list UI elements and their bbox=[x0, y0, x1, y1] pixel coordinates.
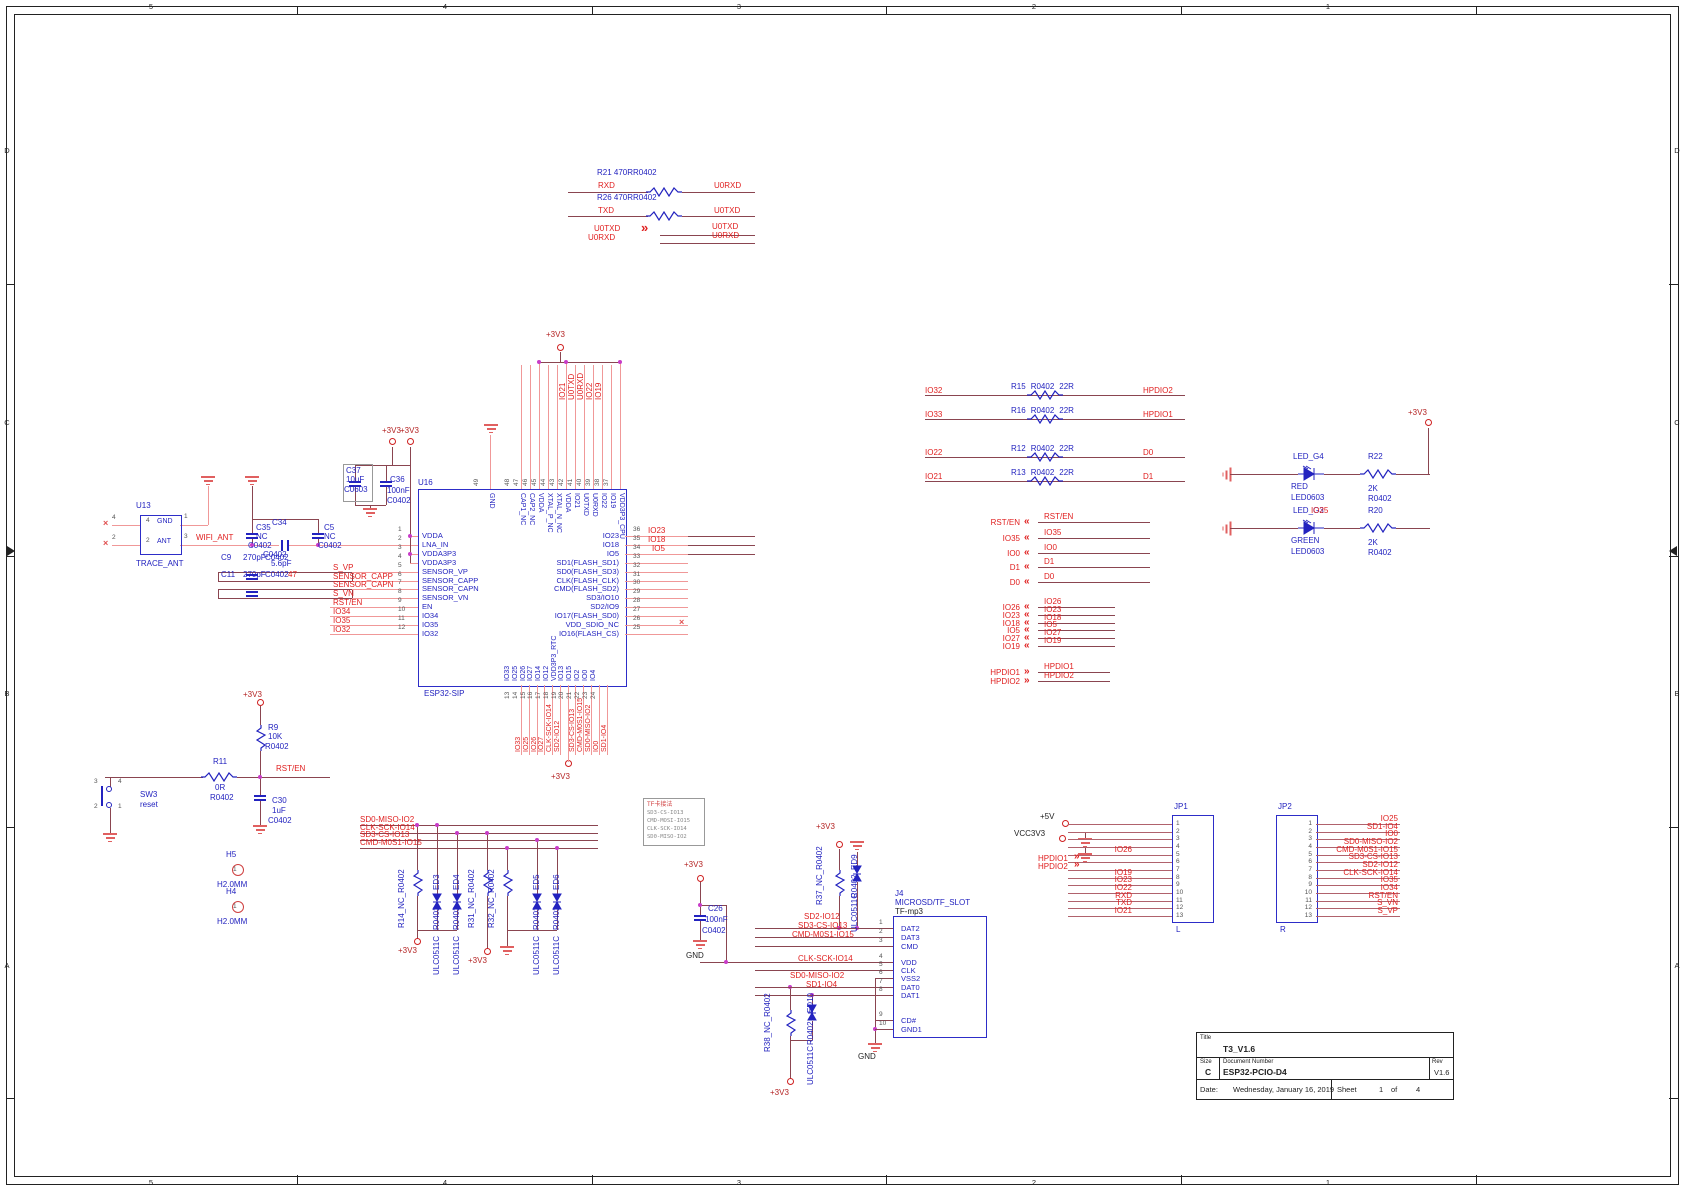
schematic-label: C0402 bbox=[702, 926, 726, 935]
led-refdes: LED_G4 bbox=[1293, 452, 1324, 461]
ground-symbol bbox=[103, 833, 117, 842]
j4-refdes: J4 bbox=[895, 889, 903, 898]
resistor-value: 2K bbox=[1368, 538, 1378, 547]
jp2-refdes: JP2 bbox=[1278, 802, 1292, 811]
schematic-label: 0R bbox=[215, 783, 225, 792]
note-line: CLK-SCK-IO14 bbox=[647, 825, 701, 833]
grid-col-label: 5 bbox=[144, 1178, 158, 1187]
schematic-label: 2 bbox=[112, 534, 116, 541]
pin-number: 2 bbox=[1176, 828, 1180, 835]
pin-name: GND bbox=[487, 493, 496, 509]
pin-name: VDD3P3_CPU bbox=[617, 493, 626, 539]
schematic-label-vertical: U0RXD bbox=[576, 373, 585, 400]
pin-number: 26 bbox=[633, 615, 640, 622]
pin-number: 11 bbox=[1176, 897, 1183, 904]
resistor-symbol-vertical bbox=[835, 870, 845, 896]
ground-symbol bbox=[201, 476, 215, 485]
pin-number: 6 bbox=[398, 571, 402, 578]
schematic-label: S_VP bbox=[333, 563, 353, 572]
pin-number: 32 bbox=[633, 562, 640, 569]
sheet-number: 1 bbox=[1379, 1085, 1383, 1094]
pin-number: 12 bbox=[398, 624, 405, 631]
schematic-label: +3V3 bbox=[1408, 408, 1427, 417]
net-label: IO19 bbox=[1044, 636, 1061, 645]
net-label: RST/EN bbox=[970, 518, 1020, 527]
pin-name: VDDA3P3 bbox=[422, 549, 456, 558]
schematic-label-vertical: ULC0511C bbox=[432, 936, 441, 975]
grid-row-label: D bbox=[1672, 146, 1682, 155]
sheet-total: 4 bbox=[1416, 1085, 1420, 1094]
schematic-label: IO25 bbox=[1311, 506, 1328, 515]
sheet-size: C bbox=[1205, 1067, 1211, 1077]
pin-number: 8 bbox=[1176, 874, 1180, 881]
pin-number: 3 bbox=[879, 937, 883, 944]
pin-number: 9 bbox=[398, 597, 402, 604]
schematic-sheet: 54321 54321 DCBA DCBA bbox=[0, 0, 1684, 1190]
grid-col-label: 4 bbox=[438, 1178, 452, 1187]
schematic-label: C35 bbox=[256, 523, 271, 532]
pin-name: SD3/IO10 bbox=[457, 593, 619, 602]
jp1-tag: L bbox=[1176, 925, 1180, 934]
pin-number: 4 bbox=[1302, 843, 1312, 850]
schematic-label-vertical: ED5 bbox=[532, 874, 541, 890]
power-node bbox=[1425, 419, 1432, 426]
schematic-label-vertical: ED10 bbox=[806, 993, 815, 1013]
ground-symbol bbox=[868, 1043, 882, 1052]
schematic-label: SENSOR_CAPN bbox=[333, 580, 393, 589]
no-connect-x: × bbox=[103, 539, 108, 548]
pin-name: U0RXD bbox=[590, 493, 599, 517]
schematic-label: SW3 bbox=[140, 790, 157, 799]
pin-number: 30 bbox=[633, 579, 640, 586]
net-wire bbox=[1038, 646, 1115, 647]
schematic-label: C36 bbox=[390, 475, 405, 484]
pin-number: 4 bbox=[879, 953, 883, 960]
chevron-right-icon: » bbox=[1024, 676, 1030, 685]
resistor-package: R0402 bbox=[1368, 548, 1392, 557]
resistor-refdes: R22 bbox=[1368, 452, 1383, 461]
schematic-label-vertical: ED3 bbox=[432, 874, 441, 890]
schematic-label: C0402 bbox=[265, 570, 289, 579]
net-label: IO0 bbox=[970, 549, 1020, 558]
pin-number: 13 bbox=[1302, 912, 1312, 919]
schematic-label: SD3-CS-IO13 bbox=[798, 921, 847, 930]
schematic-label: SD1-IO4 bbox=[806, 980, 837, 989]
pin-wire bbox=[755, 995, 893, 996]
net-wire bbox=[1396, 528, 1430, 529]
pin-number: 13 bbox=[1176, 912, 1183, 919]
schematic-label: 1 bbox=[233, 903, 237, 910]
rev-label: Rev bbox=[1432, 1059, 1443, 1065]
net-label: IO32 bbox=[925, 386, 942, 395]
chevron-left-icon: « bbox=[1024, 517, 1030, 526]
note-line: SD0-MISO-IO2 bbox=[647, 833, 701, 841]
pin-name: VSS2 bbox=[901, 974, 920, 983]
pin-name: SD1(FLASH_SD1) bbox=[457, 558, 619, 567]
schematic-label-vertical: U0TXD bbox=[567, 374, 576, 400]
grid-col-label: 1 bbox=[1321, 1178, 1335, 1187]
pin-name: CMD(FLASH_SD2) bbox=[457, 584, 619, 593]
power-node bbox=[414, 938, 421, 945]
net-wire bbox=[1038, 567, 1150, 568]
net-label: IO19 bbox=[970, 642, 1020, 651]
note-lines: SD3-CS-IO13CMD-MOSI-IO15CLK-SCK-IO14SD0-… bbox=[647, 809, 701, 841]
pin-number: 2 bbox=[1302, 828, 1312, 835]
net-wire bbox=[1230, 474, 1298, 475]
pin-wire bbox=[490, 435, 491, 489]
pin-number: 47 bbox=[512, 479, 521, 486]
net-wire bbox=[1038, 522, 1150, 523]
net-label: D1 bbox=[970, 563, 1020, 572]
schematic-label-vertical: R0402 bbox=[552, 906, 561, 930]
pin-number: 11 bbox=[398, 615, 405, 622]
schematic-label-vertical: ULC0511C bbox=[806, 1046, 815, 1085]
pin-name: SD0(FLASH_SD3) bbox=[457, 567, 619, 576]
schematic-label: R11 bbox=[213, 757, 227, 766]
net-label: IO22 bbox=[925, 448, 942, 457]
pin-name: VDDA3P3 bbox=[422, 558, 456, 567]
pin-number: 10 bbox=[1176, 889, 1183, 896]
schematic-label: SD0-MISO-IO2 bbox=[790, 971, 844, 980]
ground-symbol bbox=[693, 940, 707, 949]
pin-number: 6 bbox=[1302, 858, 1312, 865]
schematic-label: +3V3 bbox=[770, 1088, 789, 1097]
pin-wire bbox=[1068, 832, 1172, 833]
net-label: D1 bbox=[1143, 472, 1153, 481]
pin-number: 12 bbox=[1176, 904, 1183, 911]
resistor-value: R12R040222R bbox=[1011, 444, 1079, 453]
schematic-label: 270pF bbox=[243, 570, 266, 579]
date-label: Date: bbox=[1200, 1085, 1218, 1094]
schematic-label-vertical: ED4 bbox=[452, 874, 461, 890]
pin-number: 8 bbox=[398, 588, 402, 595]
net-wire bbox=[1038, 553, 1150, 554]
right-center-marker bbox=[1669, 546, 1677, 556]
pin-number: 9 bbox=[1176, 881, 1180, 888]
pin-stub bbox=[625, 634, 688, 635]
j4-value: TF-mp3 bbox=[895, 907, 923, 916]
pin-number: 33 bbox=[633, 553, 640, 560]
note-title: TF卡接法 bbox=[647, 801, 701, 809]
pin-name: LNA_IN bbox=[422, 540, 448, 549]
schematic-label: IO34 bbox=[333, 607, 350, 616]
schematic-label: H2.0MM bbox=[217, 917, 247, 926]
net-wire bbox=[1038, 538, 1150, 539]
grid-col-label: 2 bbox=[1027, 1178, 1041, 1187]
switch-contact bbox=[106, 802, 112, 808]
schematic-label: 4 bbox=[118, 778, 122, 785]
schematic-label: TXD bbox=[598, 206, 614, 215]
pin-number: 1 bbox=[1176, 820, 1180, 827]
sheet-label: Sheet bbox=[1337, 1085, 1357, 1094]
pin-number: 5 bbox=[398, 562, 402, 569]
schematic-label: U0RXD bbox=[712, 231, 739, 240]
schematic-label-vertical: R0402 bbox=[432, 906, 441, 930]
schematic-label-vertical: R0402 bbox=[532, 906, 541, 930]
schematic-label: NC bbox=[324, 532, 336, 541]
pin-name: XTAL_N_NC bbox=[554, 493, 563, 533]
date-value: Wednesday, January 16, 2019 bbox=[1233, 1085, 1334, 1094]
schematic-label-vertical: ED9 bbox=[850, 854, 859, 870]
grid-col-label: 5 bbox=[144, 2, 158, 11]
schematic-label: TRACE_ANT bbox=[136, 559, 184, 568]
power-node bbox=[389, 438, 396, 445]
net-label: IO33 bbox=[925, 410, 942, 419]
resistor-symbol bbox=[1027, 390, 1063, 400]
resistor-value: 2K bbox=[1368, 484, 1378, 493]
schematic-label: GND bbox=[686, 951, 704, 960]
schematic-label: IO35 bbox=[333, 616, 350, 625]
schematic-label: R9 bbox=[268, 723, 278, 732]
power-node bbox=[257, 699, 264, 706]
schematic-label: ANT bbox=[157, 537, 171, 546]
schematic-label: +3V3 bbox=[400, 426, 419, 435]
net-label: IO35 bbox=[970, 534, 1020, 543]
power-node bbox=[787, 1078, 794, 1085]
pin-number: 5 bbox=[1176, 851, 1180, 858]
schematic-label-vertical: R37_NC_R0402 bbox=[815, 846, 824, 905]
resistor-symbol bbox=[1027, 476, 1063, 486]
schematic-label: C0402 bbox=[387, 496, 411, 505]
title-label: Title bbox=[1200, 1035, 1211, 1041]
chevron-left-icon: « bbox=[1024, 533, 1030, 542]
pin-number: 7 bbox=[1176, 866, 1180, 873]
schematic-label: +3V3 bbox=[398, 946, 417, 955]
grid-row-label: C bbox=[1672, 418, 1682, 427]
ground-symbol bbox=[253, 825, 267, 834]
schematic-label-vertical: R0402 bbox=[806, 1021, 815, 1045]
net-label: D0 bbox=[1044, 572, 1054, 581]
ground-symbol bbox=[363, 508, 377, 517]
schematic-label: R0402 bbox=[210, 793, 234, 802]
pin-number: 41 bbox=[566, 479, 575, 486]
pin-number: 4 bbox=[1176, 843, 1180, 850]
pin-number: 9 bbox=[1302, 881, 1312, 888]
grid-col-label: 1 bbox=[1321, 2, 1335, 11]
net-label: HPDIO1 bbox=[970, 668, 1020, 677]
pin-name: IO35 bbox=[422, 620, 438, 629]
schematic-label: IO23 bbox=[648, 526, 665, 535]
pin-name: EN bbox=[422, 602, 432, 611]
schematic-label: 4 bbox=[112, 514, 116, 521]
resistor-refdes: R20 bbox=[1368, 506, 1383, 515]
pin-number: 7 bbox=[879, 978, 883, 985]
net-label: IO21 bbox=[925, 472, 942, 481]
schematic-label: C9 bbox=[221, 553, 231, 562]
net-wire bbox=[1038, 582, 1150, 583]
pin-number: 2 bbox=[879, 928, 883, 935]
schematic-label: IO5 bbox=[652, 544, 665, 553]
schematic-label: U0RXD bbox=[588, 233, 615, 242]
schematic-label: » bbox=[1074, 860, 1080, 869]
schematic-label: +3V3 bbox=[816, 822, 835, 831]
power-node bbox=[407, 438, 414, 445]
pin-number: 49 bbox=[472, 479, 481, 486]
schematic-label-vertical: R38_NC_R0402 bbox=[763, 993, 772, 1052]
resistor-symbol bbox=[1027, 414, 1063, 424]
power-node bbox=[1059, 835, 1066, 842]
grid-col-label: 3 bbox=[732, 1178, 746, 1187]
schematic-label: GND bbox=[157, 517, 173, 526]
schematic-label: 100nF bbox=[387, 486, 410, 495]
pin-wire bbox=[521, 365, 522, 489]
pin-number: 8 bbox=[879, 986, 883, 993]
pin-number: 37 bbox=[602, 479, 611, 486]
esp32-part-number: ESP32-SIP bbox=[424, 689, 464, 698]
resistor-symbol bbox=[646, 211, 682, 221]
schematic-label: +3V3 bbox=[551, 772, 570, 781]
pin-number: 10 bbox=[1302, 889, 1312, 896]
pin-number: 24 bbox=[589, 692, 598, 699]
schematic-label: IO32 bbox=[333, 625, 350, 634]
pin-number: 2 bbox=[398, 535, 402, 542]
pin-number: 1 bbox=[398, 526, 402, 533]
grid-row-label: B bbox=[2, 689, 12, 698]
pin-wire bbox=[539, 365, 540, 489]
j4-part: MICROSD/TF_SLOT bbox=[895, 898, 970, 907]
pin-name: DAT2 bbox=[901, 924, 920, 933]
chevron-left-icon: « bbox=[1024, 562, 1030, 571]
schematic-label: C37 bbox=[346, 466, 361, 475]
pin-name: IO19 bbox=[608, 493, 617, 508]
pin-number: 42 bbox=[557, 479, 566, 486]
schematic-label-vertical: R31_NC_R0402 bbox=[467, 869, 476, 928]
resistor-value: R13R040222R bbox=[1011, 468, 1079, 477]
net-label: RST/EN bbox=[1044, 512, 1073, 521]
no-connect-x: × bbox=[103, 519, 108, 528]
power-node bbox=[484, 948, 491, 955]
schematic-label: 100nF bbox=[705, 915, 728, 924]
chevron-left-icon: « bbox=[1024, 641, 1030, 650]
ground-symbol bbox=[500, 946, 514, 955]
pin-number: 29 bbox=[633, 588, 640, 595]
pin-number: 25 bbox=[633, 624, 640, 631]
pin-number: 10 bbox=[879, 1020, 886, 1027]
pin-number: 3 bbox=[1302, 835, 1312, 842]
resistor-symbol bbox=[1360, 469, 1396, 479]
resistor-symbol bbox=[201, 772, 237, 782]
led-package: LED0603 bbox=[1291, 547, 1324, 556]
pin-name: VDDA bbox=[536, 493, 545, 512]
resistor-value: R15R040222R bbox=[1011, 382, 1079, 391]
schematic-label: RST/EN bbox=[333, 598, 362, 607]
docnum-label: Document Number bbox=[1223, 1059, 1273, 1065]
grid-row-label: A bbox=[2, 961, 12, 970]
schematic-label: C26 bbox=[708, 904, 723, 913]
schematic-label: CMD-M0S1-IO15 bbox=[360, 838, 422, 847]
pin-name: VDD_SDIO_NC bbox=[457, 620, 619, 629]
grid-row-label: D bbox=[2, 146, 12, 155]
pin-number: 1 bbox=[1302, 820, 1312, 827]
schematic-label: CMD-M0S1-IO15 bbox=[792, 930, 854, 939]
revision: V1.6 bbox=[1434, 1068, 1449, 1077]
pin-number: 35 bbox=[633, 535, 640, 542]
schematic-label: +3V3 bbox=[546, 330, 565, 339]
schematic-label: U0RXD bbox=[714, 181, 741, 190]
sheet-of-label: of bbox=[1391, 1085, 1397, 1094]
pin-name: VDDA bbox=[422, 531, 443, 540]
pin-name: IO34 bbox=[422, 611, 438, 620]
pin-name: IO16(FLASH_CS) bbox=[457, 629, 619, 638]
pin-wire bbox=[1068, 839, 1172, 840]
pin-number: 1 bbox=[879, 919, 883, 926]
chevron-left-icon: « bbox=[1024, 548, 1030, 557]
net-label: D1 bbox=[1044, 557, 1054, 566]
pin-number: 7 bbox=[398, 579, 402, 586]
pin-number: 5 bbox=[879, 961, 883, 968]
pin-number: 5 bbox=[1302, 851, 1312, 858]
esp32-refdes: U16 bbox=[418, 478, 433, 487]
pin-name: IO23 bbox=[457, 531, 619, 540]
schematic-label: C11 bbox=[221, 570, 235, 579]
pin-name: VDDA bbox=[563, 493, 572, 512]
pin-name: CMD bbox=[901, 942, 918, 951]
pin-name: CAP2_NC bbox=[527, 493, 536, 525]
schematic-label: C34 bbox=[272, 518, 287, 527]
pin-name: XTAL_P_NC bbox=[545, 493, 554, 533]
ground-symbol bbox=[245, 476, 259, 485]
schematic-label: C5 bbox=[324, 523, 334, 532]
schematic-label: 270pF bbox=[243, 553, 266, 562]
schematic-label-vertical: ULC0511C bbox=[850, 893, 859, 932]
pin-number: 9 bbox=[879, 1011, 883, 1018]
size-label: Size bbox=[1200, 1059, 1212, 1065]
pin-number: 40 bbox=[575, 479, 584, 486]
pin-number: 3 bbox=[398, 544, 402, 551]
pin-number: 44 bbox=[539, 479, 548, 486]
pin-name: CD# bbox=[901, 1016, 916, 1025]
net-wire bbox=[1324, 474, 1360, 475]
schematic-label: WIFI_ANT bbox=[196, 533, 233, 542]
schematic-label: CLK-SCK-IO14 bbox=[798, 954, 853, 963]
jp2-tag: R bbox=[1280, 925, 1286, 934]
schematic-label: C0402 bbox=[265, 553, 289, 562]
schematic-label: U0TXD bbox=[594, 224, 620, 233]
pin-name: U0TXD bbox=[581, 493, 590, 516]
pin-number: 28 bbox=[633, 597, 640, 604]
grid-col-label: 3 bbox=[732, 2, 746, 11]
schematic-label: 10uF bbox=[346, 475, 364, 484]
schematic-label-vertical: R14_NC_R0402 bbox=[397, 869, 406, 928]
net-label: HPDIO1 bbox=[1143, 410, 1173, 419]
net-label: D0 bbox=[970, 578, 1020, 587]
net-label: SD1-IO4 bbox=[600, 725, 609, 752]
pin-wire bbox=[875, 1029, 893, 1030]
led-package: LED0603 bbox=[1291, 493, 1324, 502]
ground-symbol bbox=[484, 424, 498, 433]
pin-name: IO21 bbox=[572, 493, 581, 508]
net-label: HPDIO2 bbox=[1143, 386, 1173, 395]
tf-wiring-note: TF卡接法 SD3-CS-IO13CMD-MOSI-IO15CLK-SCK-IO… bbox=[643, 798, 705, 846]
schematic-label: U0TXD bbox=[712, 222, 738, 231]
schematic-label-vertical: ULC0511C bbox=[452, 936, 461, 975]
pin-wire bbox=[1068, 862, 1172, 863]
pin-number: 46 bbox=[521, 479, 530, 486]
schematic-label: R26 470RR0402 bbox=[597, 193, 657, 202]
pin-wire bbox=[875, 978, 893, 979]
document-number: ESP32-PCIO-D4 bbox=[1223, 1067, 1287, 1077]
schematic-label: NC bbox=[256, 532, 268, 541]
pin-number: 48 bbox=[503, 479, 512, 486]
pin-number: 8 bbox=[1302, 874, 1312, 881]
pin-name: IO32 bbox=[422, 629, 438, 638]
pin-name: IO17(FLASH_SD0) bbox=[457, 611, 619, 620]
schematic-label-vertical: ED6 bbox=[552, 874, 561, 890]
schematic-label: VCC3V3 bbox=[1014, 829, 1045, 838]
resistor-symbol bbox=[1027, 452, 1063, 462]
pin-name: IO18 bbox=[457, 540, 619, 549]
pin-number: 39 bbox=[584, 479, 593, 486]
